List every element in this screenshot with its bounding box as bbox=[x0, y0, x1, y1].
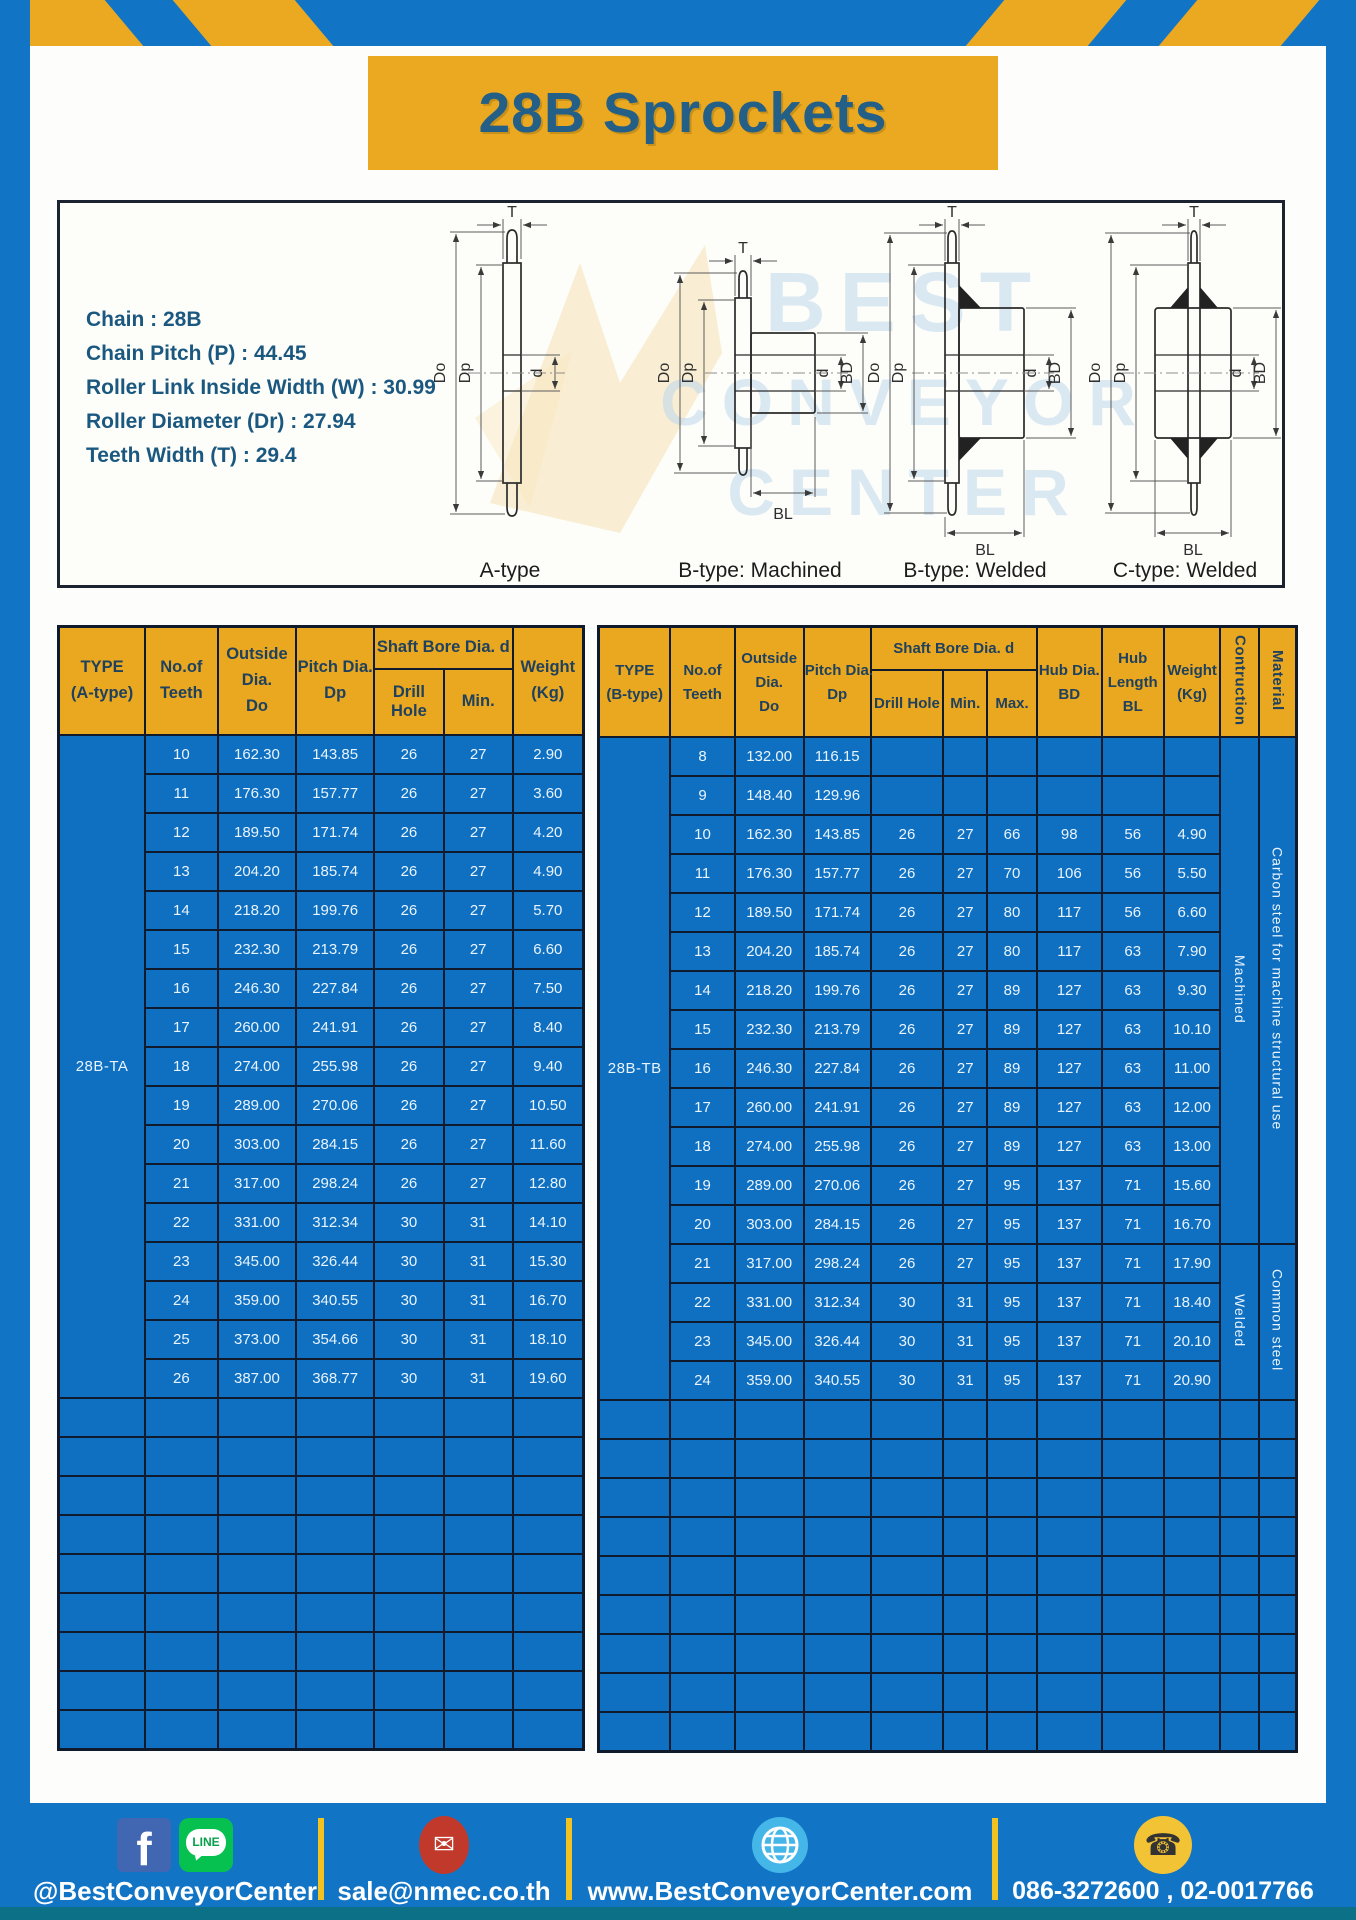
header-line: Pitch Dia. bbox=[297, 658, 373, 677]
table-cell: 331.00 bbox=[735, 1283, 804, 1322]
table-cell: 227.84 bbox=[296, 969, 374, 1008]
col-header-pitch-dia: Pitch Dia. Dp bbox=[804, 627, 871, 738]
social-handle-label[interactable]: @BestConveyorCenter bbox=[33, 1876, 317, 1907]
col-header-shaft-bore: Shaft Bore Dia. d bbox=[871, 627, 1037, 670]
table-row: 21317.00298.242627951377117.90WeldedComm… bbox=[599, 1244, 1297, 1283]
col-header-construction: Contruction bbox=[1220, 627, 1259, 738]
empty-cell bbox=[670, 1556, 734, 1595]
col-header-min: Min. bbox=[444, 669, 513, 735]
table-cell: 106 bbox=[1037, 854, 1102, 893]
table-cell: 26 bbox=[871, 854, 944, 893]
dim-label-bd: BD bbox=[1252, 362, 1269, 384]
table-cell: 20.90 bbox=[1164, 1361, 1221, 1400]
footer-email-section: ✉ sale@nmec.co.th bbox=[326, 1803, 562, 1907]
table-row: 28B-TB8132.00116.15MachinedCarbon steel … bbox=[599, 737, 1297, 776]
empty-cell bbox=[670, 1478, 734, 1517]
empty-cell bbox=[1259, 1400, 1296, 1439]
table-cell: 63 bbox=[1102, 1049, 1164, 1088]
table-cell: 26 bbox=[374, 969, 444, 1008]
empty-cell bbox=[1220, 1400, 1259, 1439]
empty-cell bbox=[670, 1517, 734, 1556]
table-cell: 199.76 bbox=[804, 971, 871, 1010]
empty-cell bbox=[218, 1398, 297, 1437]
empty-cell bbox=[943, 1439, 987, 1478]
hazard-stripe bbox=[961, 0, 1132, 46]
table-cell: 15 bbox=[145, 930, 217, 969]
table-cell: 27 bbox=[444, 1164, 513, 1203]
empty-cell bbox=[1102, 1634, 1164, 1673]
empty-cell bbox=[804, 1634, 871, 1673]
header-line: No.of bbox=[146, 658, 216, 677]
table-cell: 4.90 bbox=[1164, 815, 1221, 854]
table-cell: 31 bbox=[943, 1322, 987, 1361]
table-cell: 27 bbox=[943, 893, 987, 932]
table-cell: 21 bbox=[145, 1164, 217, 1203]
empty-cell bbox=[871, 1595, 944, 1634]
table-cell: 9 bbox=[670, 776, 734, 815]
empty-cell bbox=[943, 1595, 987, 1634]
empty-cell bbox=[1037, 1712, 1102, 1752]
table-cell: 63 bbox=[1102, 1127, 1164, 1166]
left-border-band bbox=[0, 0, 30, 1920]
empty-cell bbox=[513, 1554, 584, 1593]
col-header-type: TYPE (B-type) bbox=[599, 627, 671, 738]
dim-label-t: T bbox=[738, 240, 748, 257]
table-cell: 204.20 bbox=[735, 932, 804, 971]
table-cell: 274.00 bbox=[218, 1047, 297, 1086]
col-header-outside-dia: Outside Dia. Do bbox=[735, 627, 804, 738]
table-cell: 4.90 bbox=[513, 852, 584, 891]
table-cell: 27 bbox=[943, 1010, 987, 1049]
table-cell: 70 bbox=[987, 854, 1037, 893]
table-cell: 270.06 bbox=[804, 1166, 871, 1205]
table-cell: 26 bbox=[871, 971, 944, 1010]
footer-social-section: f LINE @BestConveyorCenter bbox=[30, 1803, 320, 1907]
table-cell: 26 bbox=[871, 1166, 944, 1205]
table-cell: 274.00 bbox=[735, 1127, 804, 1166]
empty-cell bbox=[59, 1476, 146, 1515]
bottom-accent-strip bbox=[0, 1907, 1356, 1920]
line-bubble-tail bbox=[192, 1850, 205, 1861]
empty-cell bbox=[599, 1712, 671, 1752]
table-cell: 63 bbox=[1102, 971, 1164, 1010]
empty-cell bbox=[804, 1595, 871, 1634]
table-cell: 27 bbox=[943, 971, 987, 1010]
empty-cell bbox=[804, 1439, 871, 1478]
table-row bbox=[59, 1476, 584, 1515]
phone-numbers-label[interactable]: 086-3272600 , 02-0017766 bbox=[1012, 1877, 1314, 1906]
col-header-hub-dia: Hub Dia. BD bbox=[1037, 627, 1102, 738]
table-cell bbox=[871, 737, 944, 776]
material-carbon-steel: Carbon steel for machine structural use bbox=[1259, 737, 1296, 1244]
table-cell: 27 bbox=[444, 1125, 513, 1164]
empty-cell bbox=[59, 1671, 146, 1710]
empty-cell bbox=[145, 1632, 217, 1671]
empty-cell bbox=[1037, 1478, 1102, 1517]
table-row: 19289.00270.062627951377115.60 bbox=[599, 1166, 1297, 1205]
table-cell: 23 bbox=[670, 1322, 734, 1361]
empty-cell bbox=[1102, 1712, 1164, 1752]
table-cell: 137 bbox=[1037, 1322, 1102, 1361]
empty-cell bbox=[1164, 1556, 1221, 1595]
table-cell: 18.10 bbox=[513, 1320, 584, 1359]
table-cell: 171.74 bbox=[804, 893, 871, 932]
empty-cell bbox=[871, 1712, 944, 1752]
table-row bbox=[59, 1437, 584, 1476]
table-cell: 143.85 bbox=[296, 735, 374, 774]
table-cell bbox=[1164, 776, 1221, 815]
empty-cell bbox=[1164, 1673, 1221, 1712]
table-row bbox=[599, 1556, 1297, 1595]
empty-cell bbox=[374, 1710, 444, 1750]
table-cell: 31 bbox=[444, 1203, 513, 1242]
empty-cell bbox=[1037, 1634, 1102, 1673]
empty-cell bbox=[804, 1556, 871, 1595]
table-cell: 176.30 bbox=[735, 854, 804, 893]
empty-cell bbox=[374, 1437, 444, 1476]
header-line: BD bbox=[1038, 686, 1101, 703]
col-header-teeth: No.of Teeth bbox=[670, 627, 734, 738]
dim-label-t: T bbox=[947, 204, 957, 221]
dim-label-bl: BL bbox=[975, 542, 995, 559]
table-cell: 317.00 bbox=[218, 1164, 297, 1203]
watermark-text: BEST bbox=[765, 255, 1045, 349]
table-cell: 16 bbox=[145, 969, 217, 1008]
empty-cell bbox=[444, 1554, 513, 1593]
table-cell: 117 bbox=[1037, 932, 1102, 971]
table-cell bbox=[987, 776, 1037, 815]
table-cell: 137 bbox=[1037, 1283, 1102, 1322]
empty-cell bbox=[1102, 1439, 1164, 1478]
empty-cell bbox=[145, 1476, 217, 1515]
dim-label-t: T bbox=[1189, 204, 1199, 221]
table-cell: 12 bbox=[670, 893, 734, 932]
header-line: Dp bbox=[297, 684, 373, 703]
table-cell: 298.24 bbox=[804, 1244, 871, 1283]
table-cell: 373.00 bbox=[218, 1320, 297, 1359]
dim-label-dp: Dp bbox=[457, 363, 474, 384]
table-cell: 15.60 bbox=[1164, 1166, 1221, 1205]
empty-cell bbox=[1259, 1556, 1296, 1595]
table-cell: 17.90 bbox=[1164, 1244, 1221, 1283]
table-cell: 246.30 bbox=[218, 969, 297, 1008]
empty-cell bbox=[145, 1593, 217, 1632]
empty-cell bbox=[374, 1398, 444, 1437]
table-cell: 71 bbox=[1102, 1166, 1164, 1205]
table-cell: 331.00 bbox=[218, 1203, 297, 1242]
empty-cell bbox=[804, 1673, 871, 1712]
table-row: 12189.50171.74262780117566.60 bbox=[599, 893, 1297, 932]
phone-glyph: ☎ bbox=[1144, 1828, 1181, 1863]
header-line: Weight bbox=[1165, 662, 1220, 679]
table-cell: 359.00 bbox=[735, 1361, 804, 1400]
table-cell bbox=[1037, 737, 1102, 776]
empty-cell bbox=[735, 1556, 804, 1595]
header-line: Dia. bbox=[736, 674, 803, 691]
empty-cell bbox=[1102, 1673, 1164, 1712]
table-cell: 14.10 bbox=[513, 1203, 584, 1242]
table-cell: 27 bbox=[444, 813, 513, 852]
table-cell: 95 bbox=[987, 1205, 1037, 1244]
table-row bbox=[59, 1554, 584, 1593]
table-cell: 26 bbox=[374, 891, 444, 930]
table-cell bbox=[943, 776, 987, 815]
table-cell: 157.77 bbox=[296, 774, 374, 813]
header-line: Outside bbox=[219, 645, 296, 664]
empty-cell bbox=[943, 1478, 987, 1517]
table-row bbox=[59, 1632, 584, 1671]
facebook-icon[interactable]: f bbox=[117, 1818, 171, 1872]
table-row bbox=[599, 1400, 1297, 1439]
empty-cell bbox=[987, 1517, 1037, 1556]
empty-cell bbox=[59, 1554, 146, 1593]
table-cell: 11.60 bbox=[513, 1125, 584, 1164]
empty-cell bbox=[296, 1710, 374, 1750]
table-row bbox=[59, 1710, 584, 1750]
empty-cell bbox=[1037, 1595, 1102, 1634]
empty-cell bbox=[296, 1476, 374, 1515]
footer-divider bbox=[318, 1818, 324, 1900]
empty-cell bbox=[374, 1515, 444, 1554]
table-cell: 89 bbox=[987, 1127, 1037, 1166]
table-cell: 127 bbox=[1037, 1049, 1102, 1088]
empty-cell bbox=[1102, 1517, 1164, 1556]
empty-cell bbox=[1037, 1400, 1102, 1439]
right-border-band bbox=[1326, 0, 1356, 1920]
hazard-stripe bbox=[168, 0, 339, 46]
table-cell: 27 bbox=[943, 1166, 987, 1205]
empty-cell bbox=[1102, 1478, 1164, 1517]
col-header-min: Min. bbox=[943, 670, 987, 738]
table-cell: 31 bbox=[444, 1320, 513, 1359]
line-icon[interactable]: LINE bbox=[179, 1818, 233, 1872]
table-cell: 89 bbox=[987, 1088, 1037, 1127]
table-cell: 176.30 bbox=[218, 774, 297, 813]
spec-roller-link-width: Roller Link Inside Width (W) : 30.99 bbox=[86, 371, 436, 405]
table-cell: 26 bbox=[871, 1010, 944, 1049]
table-cell: 63 bbox=[1102, 1010, 1164, 1049]
empty-cell bbox=[599, 1478, 671, 1517]
empty-cell bbox=[871, 1439, 944, 1478]
empty-cell bbox=[59, 1398, 146, 1437]
empty-cell bbox=[670, 1595, 734, 1634]
table-cell: 298.24 bbox=[296, 1164, 374, 1203]
table-row: 15232.30213.792627891276310.10 bbox=[599, 1010, 1297, 1049]
table-cell: 12.80 bbox=[513, 1164, 584, 1203]
empty-cell bbox=[374, 1554, 444, 1593]
empty-cell bbox=[943, 1634, 987, 1673]
table-cell: 284.15 bbox=[296, 1125, 374, 1164]
empty-cell bbox=[987, 1634, 1037, 1673]
empty-cell bbox=[296, 1437, 374, 1476]
empty-cell bbox=[670, 1439, 734, 1478]
table-cell bbox=[1102, 776, 1164, 815]
dim-label-bd: BD bbox=[839, 362, 856, 384]
header-line: Pitch Dia. bbox=[805, 662, 870, 679]
empty-cell bbox=[1164, 1439, 1221, 1478]
empty-cell bbox=[145, 1710, 217, 1750]
table-cell: 255.98 bbox=[804, 1127, 871, 1166]
spec-chain: Chain : 28B bbox=[86, 303, 436, 337]
empty-cell bbox=[871, 1634, 944, 1673]
table-cell: 13 bbox=[670, 932, 734, 971]
header-line: Hub Dia. bbox=[1038, 662, 1101, 679]
table-cell: 10 bbox=[145, 735, 217, 774]
table-cell: 129.96 bbox=[804, 776, 871, 815]
table-cell: 22 bbox=[145, 1203, 217, 1242]
table-cell: 199.76 bbox=[296, 891, 374, 930]
table-cell: 26 bbox=[374, 813, 444, 852]
table-cell: 5.50 bbox=[1164, 854, 1221, 893]
table-cell: 27 bbox=[444, 1086, 513, 1125]
table-cell: 127 bbox=[1037, 971, 1102, 1010]
empty-cell bbox=[444, 1515, 513, 1554]
header-line: Weight bbox=[514, 658, 582, 677]
header-line: Teeth bbox=[146, 684, 216, 703]
title-banner: 28B Sprockets bbox=[368, 56, 998, 170]
empty-cell bbox=[1102, 1556, 1164, 1595]
globe-glyph bbox=[759, 1824, 801, 1866]
header-line: TYPE bbox=[600, 662, 669, 679]
empty-cell bbox=[1102, 1400, 1164, 1439]
website-label[interactable]: www.BestConveyorCenter.com bbox=[588, 1876, 973, 1907]
top-border-band bbox=[0, 0, 1356, 46]
table-cell: 213.79 bbox=[804, 1010, 871, 1049]
table-cell: 66 bbox=[987, 815, 1037, 854]
table-cell: 284.15 bbox=[804, 1205, 871, 1244]
col-header-outside-dia: Outside Dia. Do bbox=[218, 627, 297, 735]
empty-cell bbox=[1164, 1517, 1221, 1556]
table-cell: 26 bbox=[871, 1088, 944, 1127]
empty-cell bbox=[296, 1632, 374, 1671]
table-row: 9148.40129.96 bbox=[599, 776, 1297, 815]
table-cell: 26 bbox=[374, 1125, 444, 1164]
email-label[interactable]: sale@nmec.co.th bbox=[337, 1876, 550, 1907]
header-line: Contruction bbox=[1231, 635, 1248, 725]
empty-cell bbox=[1259, 1634, 1296, 1673]
empty-cell bbox=[943, 1673, 987, 1712]
spec-chain-pitch: Chain Pitch (P) : 44.45 bbox=[86, 337, 436, 371]
table-row: 17260.00241.912627891276312.00 bbox=[599, 1088, 1297, 1127]
empty-cell bbox=[513, 1710, 584, 1750]
empty-cell bbox=[218, 1671, 297, 1710]
empty-cell bbox=[735, 1634, 804, 1673]
table-row: 13204.20185.74262780117637.90 bbox=[599, 932, 1297, 971]
table-cell: 387.00 bbox=[218, 1359, 297, 1398]
table-cell: 16.70 bbox=[1164, 1205, 1221, 1244]
empty-cell bbox=[735, 1673, 804, 1712]
table-cell: 10.50 bbox=[513, 1086, 584, 1125]
empty-cell bbox=[735, 1439, 804, 1478]
caption-a-type: A-type bbox=[480, 559, 541, 582]
table-cell: 15.30 bbox=[513, 1242, 584, 1281]
empty-cell bbox=[987, 1400, 1037, 1439]
col-header-weight: Weight (Kg) bbox=[513, 627, 584, 735]
table-row: 18274.00255.982627891276313.00 bbox=[599, 1127, 1297, 1166]
footer-divider bbox=[992, 1818, 998, 1900]
empty-cell bbox=[374, 1476, 444, 1515]
empty-cell bbox=[735, 1712, 804, 1752]
empty-cell bbox=[513, 1476, 584, 1515]
empty-cell bbox=[987, 1673, 1037, 1712]
construction-machined: Machined bbox=[1220, 737, 1259, 1244]
table-cell: 26 bbox=[374, 930, 444, 969]
table-cell: 27 bbox=[444, 969, 513, 1008]
table-cell: 312.34 bbox=[804, 1283, 871, 1322]
table-cell: 7.50 bbox=[513, 969, 584, 1008]
empty-cell bbox=[218, 1554, 297, 1593]
empty-cell bbox=[599, 1634, 671, 1673]
empty-cell bbox=[296, 1593, 374, 1632]
table-cell: 148.40 bbox=[735, 776, 804, 815]
table-cell: 89 bbox=[987, 1049, 1037, 1088]
table-cell: 63 bbox=[1102, 932, 1164, 971]
empty-cell bbox=[218, 1710, 297, 1750]
empty-cell bbox=[513, 1437, 584, 1476]
table-cell: 18 bbox=[145, 1047, 217, 1086]
table-cell: 303.00 bbox=[218, 1125, 297, 1164]
table-cell: 95 bbox=[987, 1244, 1037, 1283]
empty-cell bbox=[444, 1671, 513, 1710]
empty-cell bbox=[296, 1515, 374, 1554]
table-cell: 30 bbox=[374, 1359, 444, 1398]
spec-roller-diameter: Roller Diameter (Dr) : 27.94 bbox=[86, 405, 436, 439]
table-cell: 5.70 bbox=[513, 891, 584, 930]
empty-cell bbox=[59, 1515, 146, 1554]
table-cell: 26 bbox=[871, 1049, 944, 1088]
dim-label-do: Do bbox=[656, 363, 673, 384]
table-cell bbox=[1102, 737, 1164, 776]
table-cell: 27 bbox=[943, 1244, 987, 1283]
table-cell: 30 bbox=[871, 1361, 944, 1400]
empty-cell bbox=[670, 1400, 734, 1439]
table-cell: 312.34 bbox=[296, 1203, 374, 1242]
col-header-weight: Weight (Kg) bbox=[1164, 627, 1221, 738]
mail-icon[interactable]: ✉ bbox=[419, 1816, 469, 1874]
empty-cell bbox=[145, 1554, 217, 1593]
empty-cell bbox=[735, 1595, 804, 1634]
catalog-page: 28B Sprockets BEST CONVEYOR CENTER bbox=[0, 0, 1356, 1920]
empty-cell bbox=[444, 1593, 513, 1632]
empty-cell bbox=[1037, 1439, 1102, 1478]
col-header-teeth: No.of Teeth bbox=[145, 627, 217, 735]
envelope-glyph: ✉ bbox=[433, 1829, 455, 1860]
table-cell: 27 bbox=[444, 891, 513, 930]
table-cell: 95 bbox=[987, 1322, 1037, 1361]
table-cell: 213.79 bbox=[296, 930, 374, 969]
table-cell: 26 bbox=[374, 735, 444, 774]
header-line: No.of bbox=[671, 662, 733, 679]
table-cell: 26 bbox=[871, 893, 944, 932]
table-row: 10162.30143.8526276698564.90 bbox=[599, 815, 1297, 854]
table-cell: 3.60 bbox=[513, 774, 584, 813]
table-cell: 25 bbox=[145, 1320, 217, 1359]
line-bubble: LINE bbox=[186, 1829, 226, 1856]
empty-cell bbox=[444, 1437, 513, 1476]
phone-icon[interactable]: ☎ bbox=[1134, 1816, 1192, 1874]
header-line: Do bbox=[219, 697, 296, 716]
table-cell: 31 bbox=[444, 1281, 513, 1320]
type-cell-28b-ta: 28B-TA bbox=[59, 735, 146, 1398]
table-cell: 63 bbox=[1102, 1088, 1164, 1127]
table-cell: 117 bbox=[1037, 893, 1102, 932]
empty-cell bbox=[599, 1400, 671, 1439]
table-row bbox=[599, 1673, 1297, 1712]
table-cell: 127 bbox=[1037, 1010, 1102, 1049]
table-row bbox=[599, 1439, 1297, 1478]
globe-icon[interactable] bbox=[752, 1817, 808, 1873]
table-cell: 317.00 bbox=[735, 1244, 804, 1283]
